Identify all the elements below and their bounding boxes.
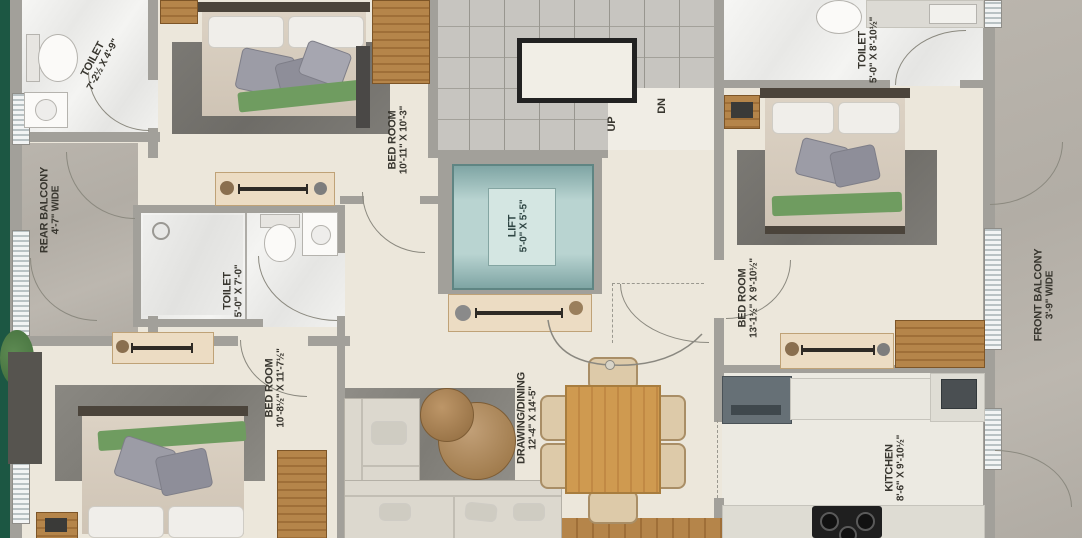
toilet-bowl <box>816 0 862 34</box>
pillow <box>772 102 834 134</box>
kitchen-counter <box>930 373 985 422</box>
window <box>12 230 30 336</box>
room-label-toilet-top-right: TOILET5'-0" X 8'-10½" <box>856 17 880 83</box>
tv-unit <box>8 352 42 464</box>
dining-chair <box>588 490 638 524</box>
door-swing <box>362 192 425 253</box>
room-label-kitchen: KITCHEN8'-6" X 9'-10½" <box>883 435 907 501</box>
bed-footboard <box>765 226 905 234</box>
stairs-dn-label: DN <box>656 98 668 114</box>
nightstand <box>160 0 198 24</box>
pendant-light <box>540 318 710 374</box>
bed-footboard <box>78 406 248 416</box>
room-label-bedroom-right: BED ROOM13'-1½" X 9'-10½" <box>736 258 760 338</box>
washbasin <box>24 92 68 128</box>
kitchen-counter <box>790 378 932 420</box>
gas-stove <box>812 506 882 538</box>
room-label-drawing-dining: DRAWING/DINING12'-4" X 14'-5" <box>515 372 539 464</box>
wall <box>714 0 724 260</box>
shower-glass <box>245 213 247 319</box>
pillow <box>838 102 900 134</box>
toilet-bowl <box>264 224 296 262</box>
sofa-base-section <box>344 480 562 538</box>
room-label-toilet-center: TOILET5'-0" X 7'-0" <box>221 265 245 318</box>
room-label-bedroom-top: BED ROOM10'-11" X 10'-3" <box>386 106 410 174</box>
dresser <box>215 172 335 206</box>
storage-chest <box>277 450 327 538</box>
shower-head <box>152 222 170 240</box>
vanity <box>302 212 338 256</box>
wall <box>148 0 158 80</box>
room-label-front-balcony: FRONT BALCONY3'-9" WIDE <box>1032 249 1056 342</box>
dresser <box>112 332 214 364</box>
wardrobe <box>895 320 985 368</box>
wall <box>337 205 345 253</box>
toilet-bowl <box>38 34 78 82</box>
room-label-lift: LIFT5'-0" X 5'-5" <box>506 200 530 253</box>
pillow <box>288 16 364 48</box>
pillow <box>208 16 284 48</box>
wall <box>133 319 263 327</box>
kitchen-sink-unit <box>722 376 792 424</box>
nightstand <box>36 512 78 538</box>
vanity-counter <box>866 0 984 28</box>
wall <box>340 196 364 204</box>
dresser <box>780 333 894 369</box>
stairs-up-label: UP <box>606 117 618 132</box>
nightstand <box>724 95 760 129</box>
window <box>984 228 1002 350</box>
bed-headboard <box>760 88 910 98</box>
pillow <box>168 506 244 538</box>
wall <box>428 150 608 158</box>
room-label-bedroom-left: BED ROOM10'-8½" X 11'-7½" <box>263 348 287 427</box>
wardrobe <box>372 0 430 84</box>
coffee-table <box>420 388 474 442</box>
window <box>984 0 1002 28</box>
tv-panel <box>356 46 370 128</box>
wall <box>10 132 160 142</box>
bed-headboard <box>198 2 370 12</box>
room-label-rear-balcony: REAR BALCONY4'-7" WIDE <box>38 167 62 253</box>
wall <box>148 128 158 158</box>
stair-void <box>517 38 637 103</box>
wall <box>133 205 141 327</box>
passage-line <box>717 420 718 498</box>
floor-plan: TOILET7'-2½ X 4'-9" REAR BALCONY4'-7" WI… <box>0 0 1082 538</box>
dining-table <box>565 385 661 494</box>
pillow <box>88 506 164 538</box>
passage-line <box>612 283 704 284</box>
